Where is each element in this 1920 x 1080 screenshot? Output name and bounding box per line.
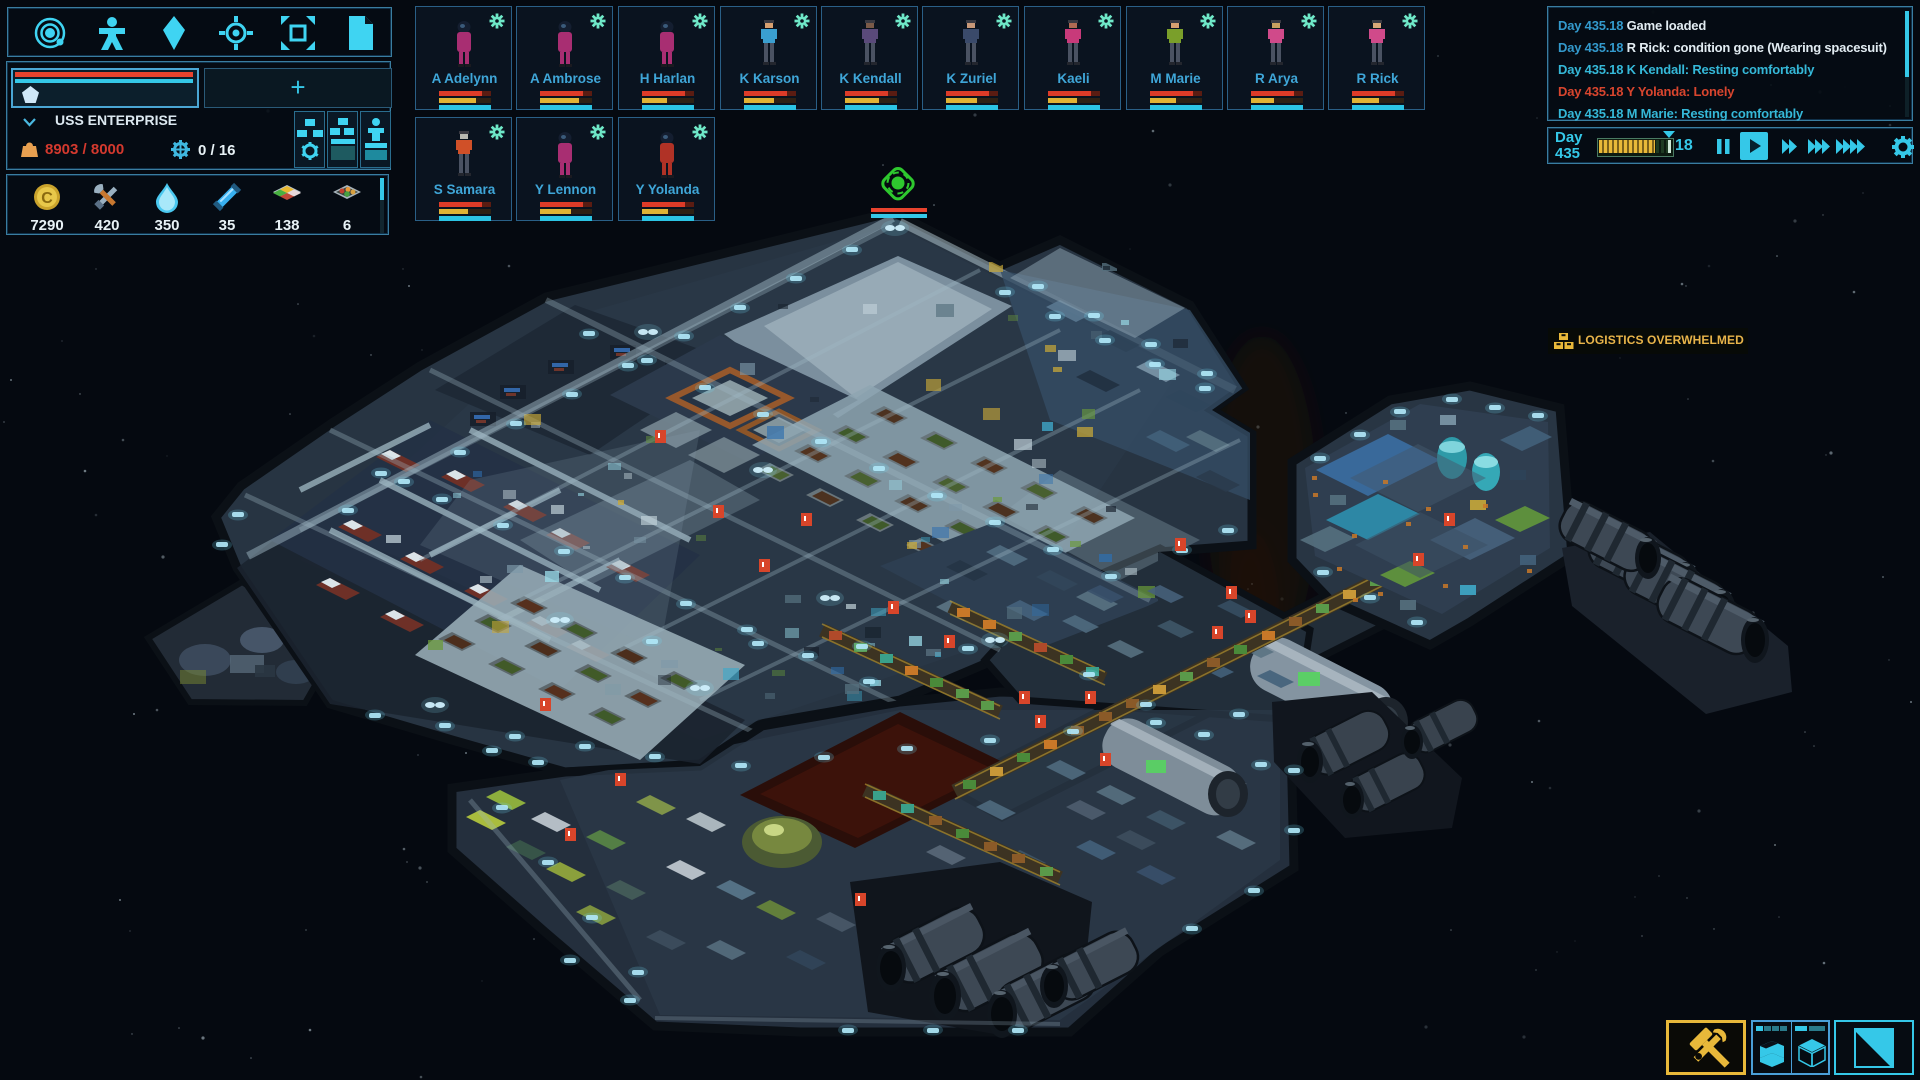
svg-text:C: C bbox=[41, 190, 53, 207]
